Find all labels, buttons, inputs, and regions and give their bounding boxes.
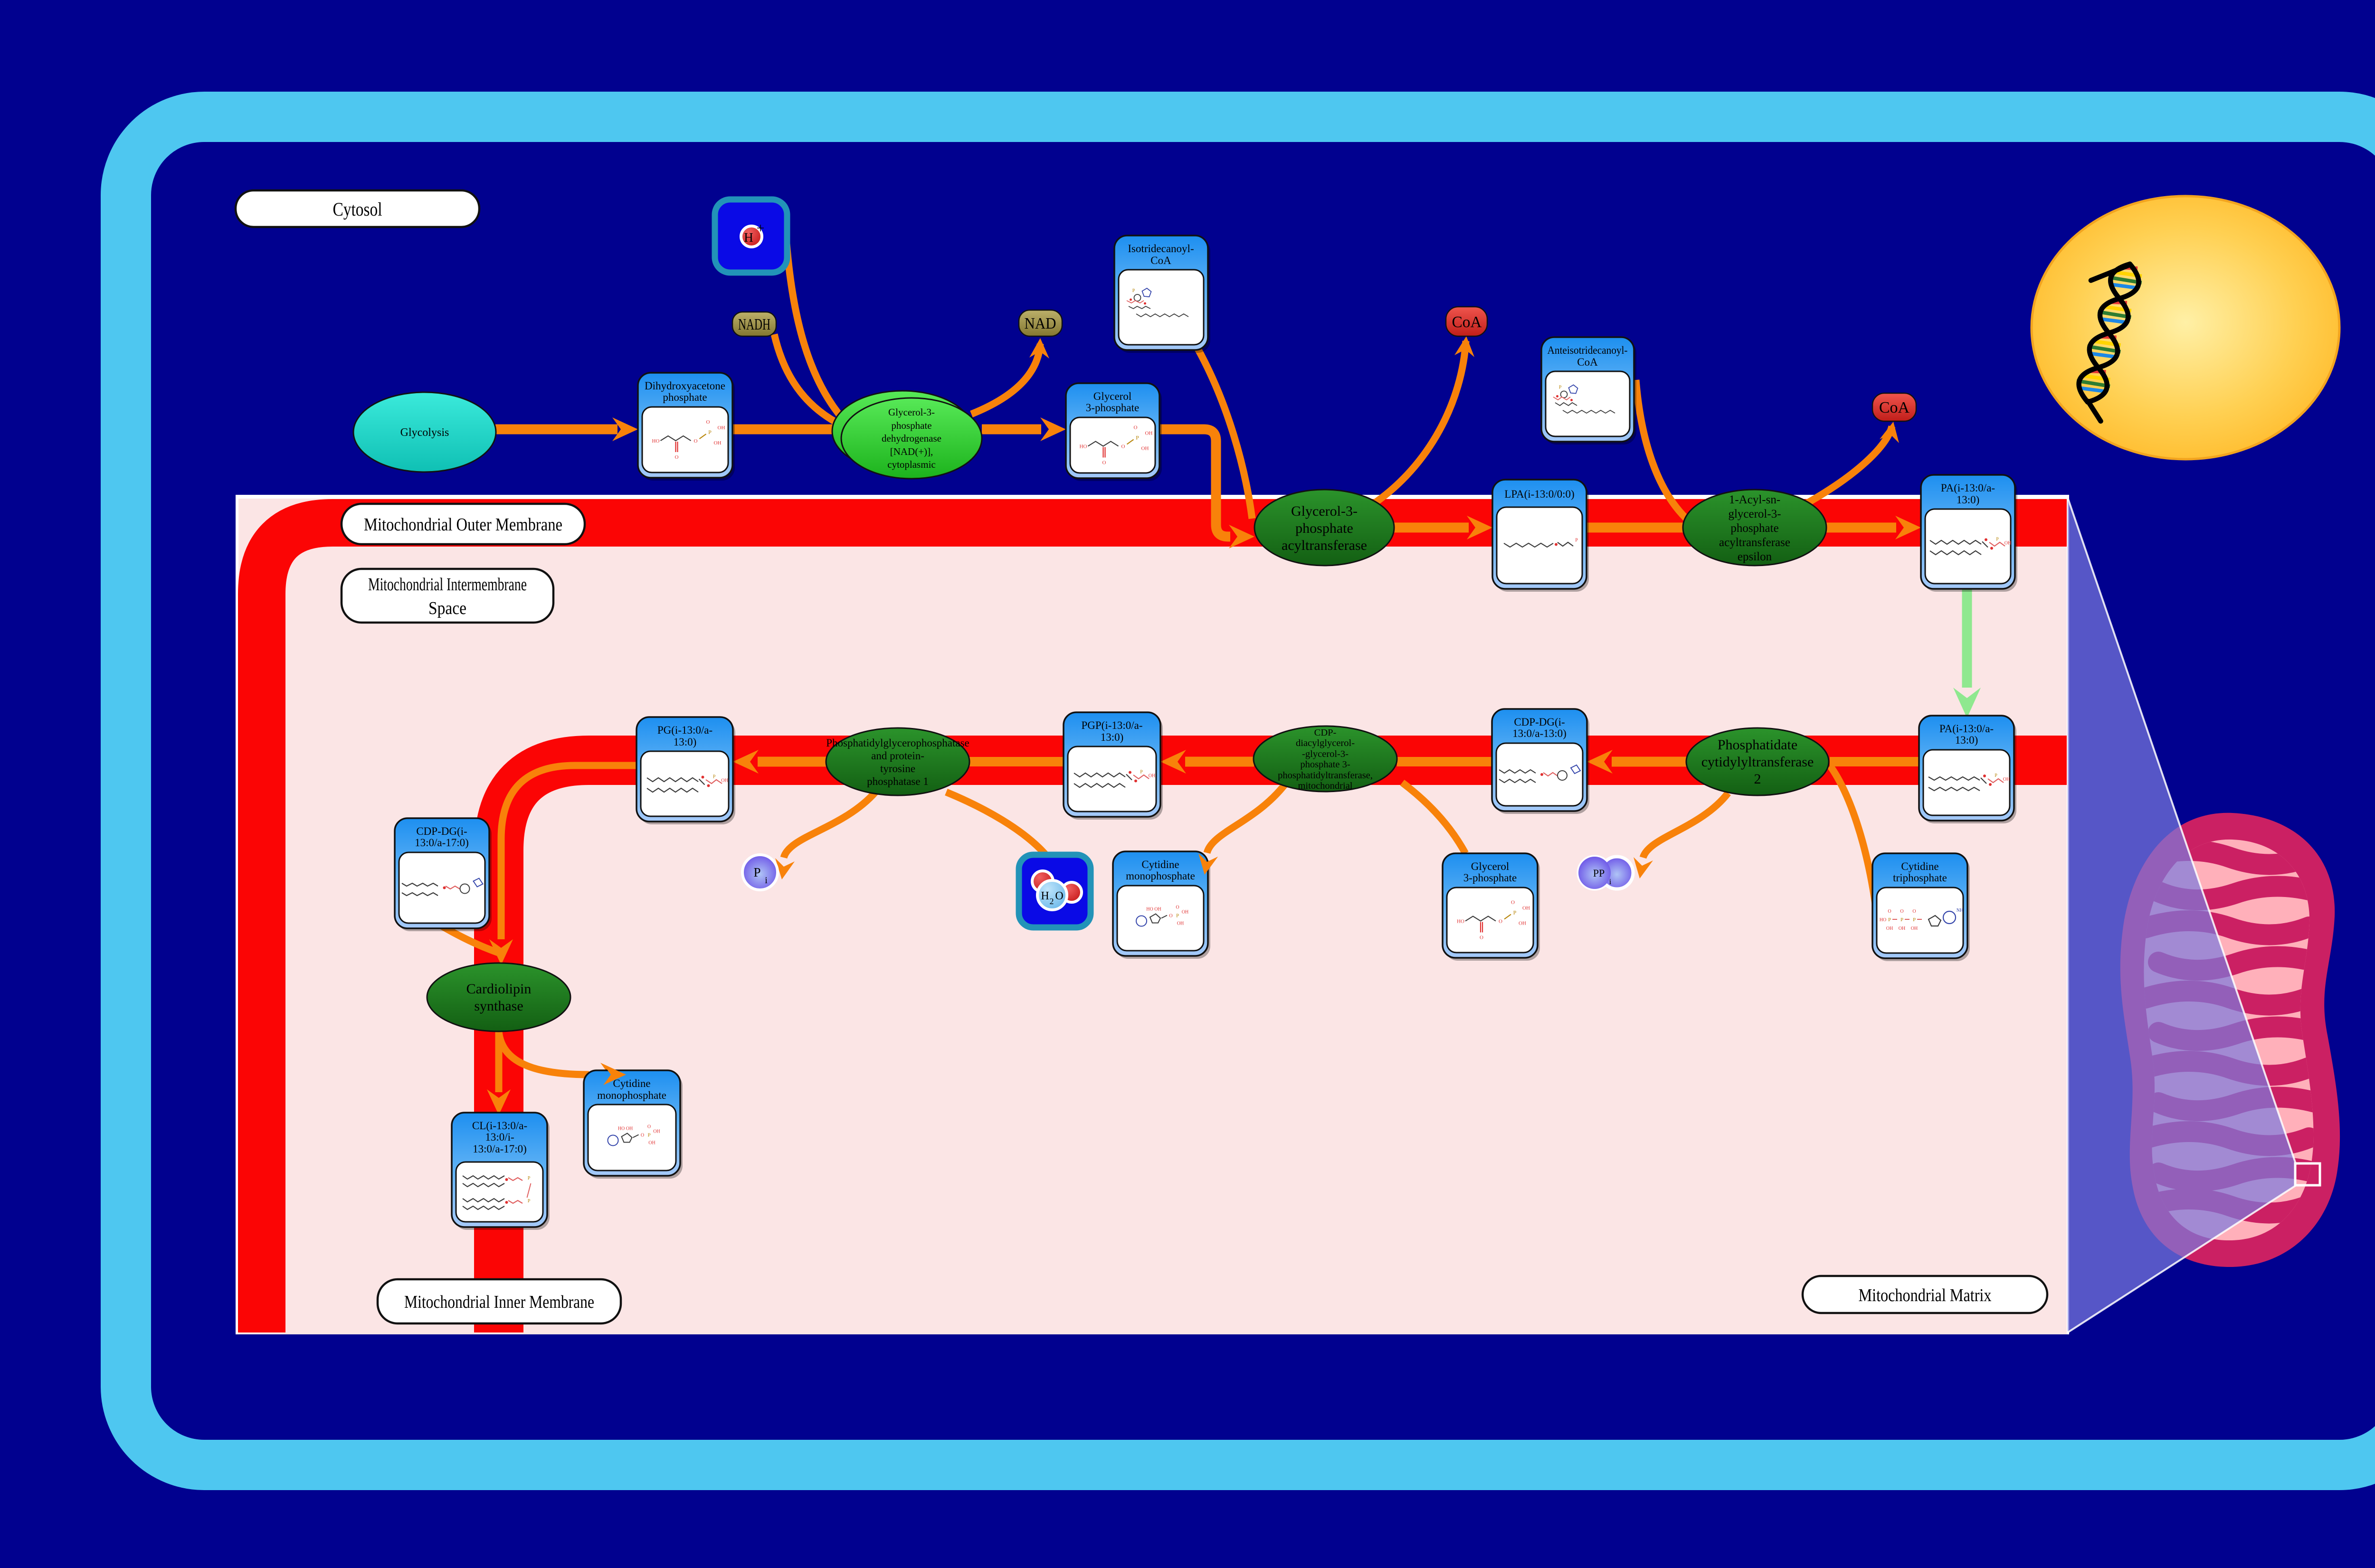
svg-text:Glycerol-3-: Glycerol-3- xyxy=(1291,503,1358,519)
svg-text:O: O xyxy=(1499,919,1502,925)
svg-text:O: O xyxy=(1134,425,1138,431)
svg-text:Glycerol: Glycerol xyxy=(1093,390,1131,402)
svg-text:PG(i-13:0/a-: PG(i-13:0/a- xyxy=(657,724,712,736)
svg-text:CL(i-13:0/a-: CL(i-13:0/a- xyxy=(472,1120,527,1132)
svg-text:OH: OH xyxy=(1177,921,1184,926)
svg-text:glycerol-3-: glycerol-3- xyxy=(1728,508,1781,520)
svg-text:3-phosphate: 3-phosphate xyxy=(1086,402,1139,414)
svg-text:LPA(i-13:0/0:0): LPA(i-13:0/0:0) xyxy=(1504,488,1574,500)
svg-text:OH: OH xyxy=(648,1141,655,1146)
svg-text:Isotridecanoyl-: Isotridecanoyl- xyxy=(1128,243,1194,255)
svg-text:3-phosphate: 3-phosphate xyxy=(1463,872,1517,884)
svg-text:OH: OH xyxy=(1182,910,1188,915)
svg-text:HO: HO xyxy=(1457,919,1464,925)
svg-text:phosphate: phosphate xyxy=(1730,522,1778,535)
svg-text:OH: OH xyxy=(2004,541,2011,546)
svg-text:OH: OH xyxy=(1886,926,1893,931)
svg-text:O: O xyxy=(1169,914,1172,919)
svg-text:Mitochondrial Intermembrane: Mitochondrial Intermembrane xyxy=(368,575,527,595)
svg-text:Mitochondrial Outer Membrane: Mitochondrial Outer Membrane xyxy=(364,515,562,535)
svg-text:and protein-: and protein- xyxy=(871,750,924,762)
svg-text:P: P xyxy=(647,1133,650,1138)
svg-text:13:0/a-13:0): 13:0/a-13:0) xyxy=(1512,727,1567,739)
svg-text:P: P xyxy=(713,775,716,780)
svg-text:O: O xyxy=(1102,460,1106,466)
svg-text:+: + xyxy=(757,220,765,236)
svg-text:13:0/i-: 13:0/i- xyxy=(485,1131,514,1143)
svg-text:Cytidine: Cytidine xyxy=(1901,860,1938,872)
svg-text:P: P xyxy=(1888,917,1891,923)
svg-text:2: 2 xyxy=(1754,771,1761,787)
svg-text:Phosphatidate: Phosphatidate xyxy=(1718,737,1797,753)
svg-text:13:0/a-17:0): 13:0/a-17:0) xyxy=(473,1143,527,1155)
svg-text:PA(i-13:0/a-: PA(i-13:0/a- xyxy=(1939,723,1994,735)
svg-text:1-Acyl-sn-: 1-Acyl-sn- xyxy=(1729,493,1780,506)
svg-text:acyltransferase: acyltransferase xyxy=(1282,538,1367,553)
svg-text:CoA: CoA xyxy=(1150,255,1171,266)
svg-text:Anteisotridecanoyl-: Anteisotridecanoyl- xyxy=(1548,344,1628,356)
svg-text:phosphate: phosphate xyxy=(1295,520,1353,536)
svg-text:Dihydroxyacetone: Dihydroxyacetone xyxy=(645,380,725,392)
svg-text:[NAD(+)],: [NAD(+)], xyxy=(890,446,933,457)
svg-text:PP: PP xyxy=(1593,867,1605,879)
svg-text:OH: OH xyxy=(714,440,722,446)
svg-text:cytidylyltransferase: cytidylyltransferase xyxy=(1701,754,1814,770)
svg-text:HO: HO xyxy=(1080,444,1087,450)
svg-text:Cardiolipin: Cardiolipin xyxy=(466,981,532,997)
svg-text:P: P xyxy=(1132,288,1135,293)
svg-text:monophosphate: monophosphate xyxy=(1126,870,1195,882)
svg-text:P: P xyxy=(1140,770,1143,775)
svg-text:OH: OH xyxy=(1899,926,1905,931)
svg-text:Mitochondrial Inner Membrane: Mitochondrial Inner Membrane xyxy=(404,1292,594,1312)
svg-text:O: O xyxy=(1176,905,1179,910)
svg-text:dehydrogenase: dehydrogenase xyxy=(882,433,941,444)
svg-text:P: P xyxy=(1995,773,1997,778)
svg-text:NH: NH xyxy=(1957,908,1963,913)
svg-text:O: O xyxy=(1912,909,1916,914)
svg-text:CDP-: CDP- xyxy=(1314,727,1337,738)
svg-text:HO OH: HO OH xyxy=(1146,907,1161,912)
svg-text:P: P xyxy=(1136,435,1139,441)
svg-text:O: O xyxy=(647,1124,651,1130)
svg-text:Glycolysis: Glycolysis xyxy=(400,426,449,439)
svg-text:phosphatase 1: phosphatase 1 xyxy=(867,775,929,787)
svg-text:epsilon: epsilon xyxy=(1738,550,1772,563)
svg-text:CoA: CoA xyxy=(1452,313,1482,331)
svg-text:cytoplasmic: cytoplasmic xyxy=(887,459,935,470)
svg-text:Space: Space xyxy=(428,598,466,618)
svg-text:O: O xyxy=(1511,900,1515,906)
svg-text:Phosphatidylglycerophosphatase: Phosphatidylglycerophosphatase xyxy=(826,737,969,749)
svg-text:OH: OH xyxy=(718,425,725,431)
svg-text:synthase: synthase xyxy=(474,998,523,1014)
svg-text:13:0): 13:0) xyxy=(674,736,697,748)
svg-text:O: O xyxy=(1900,909,1903,914)
svg-text:P: P xyxy=(708,429,712,435)
svg-text:OH: OH xyxy=(1141,446,1149,452)
svg-text:mitochondrial: mitochondrial xyxy=(1298,781,1352,791)
svg-text:13:0): 13:0) xyxy=(1101,731,1124,743)
svg-text:O: O xyxy=(1888,909,1891,914)
svg-text:Cytosol: Cytosol xyxy=(333,198,382,220)
svg-text:i: i xyxy=(1609,877,1612,886)
svg-text:-glycerol-3-: -glycerol-3- xyxy=(1302,749,1349,759)
svg-text:OH: OH xyxy=(653,1129,660,1134)
svg-text:NADH: NADH xyxy=(738,316,770,333)
svg-text:13:0): 13:0) xyxy=(1955,734,1978,746)
svg-text:HO: HO xyxy=(652,438,660,444)
svg-text:OH: OH xyxy=(2003,777,2010,782)
svg-text:HO: HO xyxy=(1880,917,1886,923)
svg-text:2: 2 xyxy=(1050,897,1054,906)
svg-text:PGP(i-13:0/a-: PGP(i-13:0/a- xyxy=(1081,719,1142,731)
svg-text:O: O xyxy=(1480,935,1483,941)
svg-text:P: P xyxy=(528,1176,531,1181)
svg-text:OH: OH xyxy=(1519,921,1526,926)
svg-text:O: O xyxy=(641,1133,644,1138)
svg-text:H: H xyxy=(1041,890,1049,902)
svg-text:OH: OH xyxy=(721,778,728,784)
svg-text:OH: OH xyxy=(1149,774,1155,779)
svg-text:OH: OH xyxy=(1145,431,1153,436)
svg-text:Mitochondrial Matrix: Mitochondrial Matrix xyxy=(1859,1285,1992,1305)
svg-text:CDP-DG(i-: CDP-DG(i- xyxy=(1514,716,1565,728)
svg-text:H: H xyxy=(744,230,753,245)
svg-text:OH: OH xyxy=(1522,906,1530,911)
svg-text:phosphate: phosphate xyxy=(891,420,931,431)
svg-text:HO OH: HO OH xyxy=(618,1126,633,1132)
svg-text:phosphate: phosphate xyxy=(663,391,707,403)
svg-text:OH: OH xyxy=(1911,926,1918,931)
svg-text:Cytidine: Cytidine xyxy=(1141,859,1179,870)
svg-text:Glycerol: Glycerol xyxy=(1471,860,1509,872)
svg-text:13:0/a-17:0): 13:0/a-17:0) xyxy=(415,837,469,849)
svg-text:Cytidine: Cytidine xyxy=(613,1077,650,1089)
svg-text:P: P xyxy=(1513,909,1517,916)
svg-text:O: O xyxy=(694,438,698,444)
svg-text:i: i xyxy=(765,875,768,886)
svg-text:phosphatidyltransferase,: phosphatidyltransferase, xyxy=(1278,770,1373,781)
svg-text:P: P xyxy=(1900,917,1903,923)
svg-text:P: P xyxy=(753,865,760,879)
svg-text:PA(i-13:0/a-: PA(i-13:0/a- xyxy=(1941,482,1995,494)
svg-text:monophosphate: monophosphate xyxy=(597,1089,666,1101)
svg-text:P: P xyxy=(528,1199,531,1204)
svg-text:CoA: CoA xyxy=(1577,356,1598,368)
svg-text:Glycerol-3-: Glycerol-3- xyxy=(888,406,935,418)
svg-text:P: P xyxy=(1559,385,1562,390)
svg-text:tyrosine: tyrosine xyxy=(880,763,915,775)
svg-text:NAD: NAD xyxy=(1025,315,1056,332)
svg-text:O: O xyxy=(675,454,679,460)
svg-text:P: P xyxy=(1996,537,1999,542)
svg-text:O: O xyxy=(1121,444,1125,450)
svg-text:CoA: CoA xyxy=(1879,399,1910,416)
svg-text:13:0): 13:0) xyxy=(1957,494,1980,506)
svg-text:diacylglycerol-: diacylglycerol- xyxy=(1296,738,1355,748)
svg-text:acyltransferase: acyltransferase xyxy=(1719,536,1790,549)
svg-text:P: P xyxy=(1575,538,1578,543)
svg-text:phosphate 3-: phosphate 3- xyxy=(1300,759,1350,770)
svg-text:O: O xyxy=(706,419,710,425)
svg-text:P: P xyxy=(1913,917,1916,923)
svg-text:CDP-DG(i-: CDP-DG(i- xyxy=(416,825,467,837)
svg-text:O: O xyxy=(1055,890,1063,902)
svg-text:P: P xyxy=(1176,913,1179,919)
svg-text:triphosphate: triphosphate xyxy=(1893,872,1947,884)
